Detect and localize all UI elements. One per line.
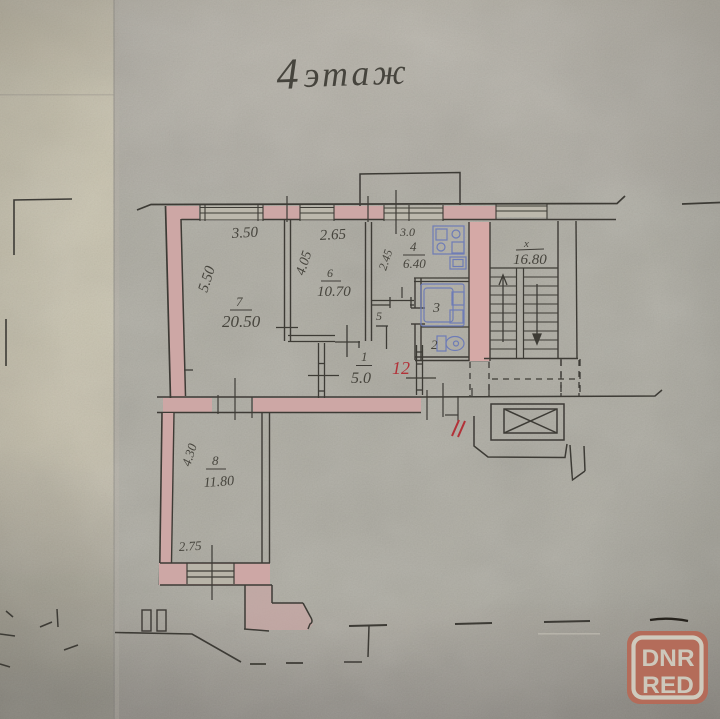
svg-text:x: x [523, 238, 529, 250]
svg-text:6.40: 6.40 [403, 256, 426, 271]
svg-text:DNR: DNR [641, 645, 694, 672]
svg-text:10.70: 10.70 [317, 284, 351, 300]
svg-text:3.50: 3.50 [230, 225, 259, 242]
svg-text:7: 7 [236, 294, 243, 309]
svg-text:3: 3 [432, 301, 440, 316]
svg-text:20.50: 20.50 [222, 312, 261, 331]
svg-text:4: 4 [276, 49, 300, 99]
svg-text:16.80: 16.80 [513, 252, 547, 268]
svg-text:6: 6 [327, 266, 333, 280]
svg-text:2: 2 [431, 337, 438, 352]
svg-text:3.0: 3.0 [399, 225, 415, 239]
svg-text:2.65: 2.65 [319, 227, 347, 244]
svg-text:5.0: 5.0 [351, 370, 371, 387]
svg-text:8: 8 [212, 453, 219, 468]
svg-text:этаж: этаж [303, 51, 410, 95]
svg-text:1: 1 [361, 349, 368, 364]
svg-text:11.80: 11.80 [203, 474, 234, 491]
svg-text:5: 5 [376, 309, 382, 323]
svg-text:RED: RED [642, 672, 694, 699]
svg-text:2.75: 2.75 [178, 538, 202, 554]
svg-text:4: 4 [410, 239, 417, 254]
svg-text:12: 12 [392, 358, 410, 378]
